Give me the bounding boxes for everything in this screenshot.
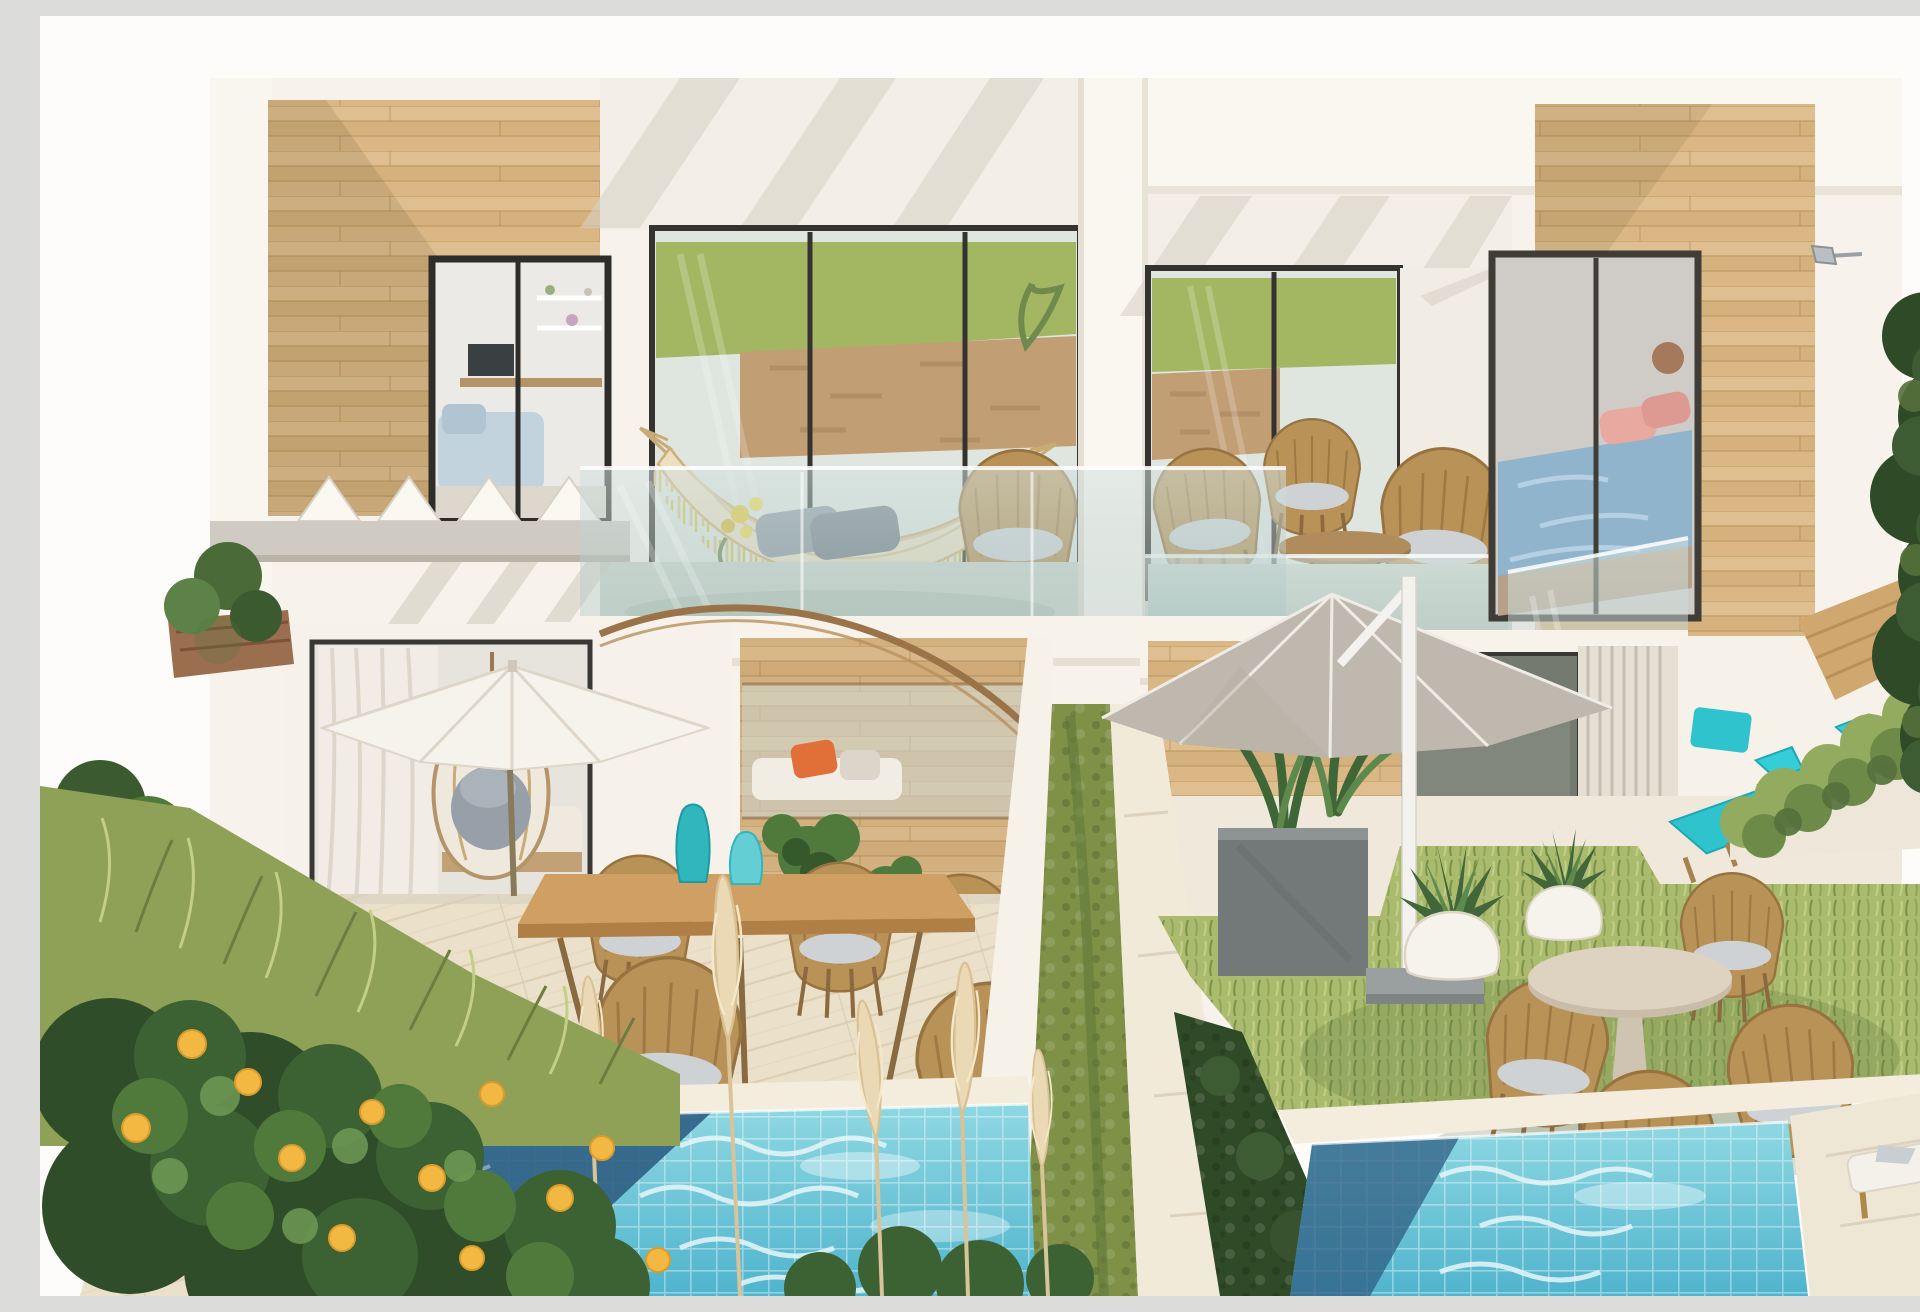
villa-exterior-render: Sunny exterior render of a modern two-un… <box>40 16 1920 1296</box>
reflection-stone-wall <box>740 336 1076 458</box>
scene-canvas <box>40 16 1920 1296</box>
glass-balustrade-left <box>580 468 1286 620</box>
parasol-mast <box>1402 576 1416 984</box>
person-head <box>1652 342 1684 374</box>
cyan-towel <box>1690 707 1752 754</box>
pool-deck-right <box>1790 1086 1920 1296</box>
daybed-nook <box>742 684 1030 818</box>
interior-monitor <box>468 344 514 376</box>
